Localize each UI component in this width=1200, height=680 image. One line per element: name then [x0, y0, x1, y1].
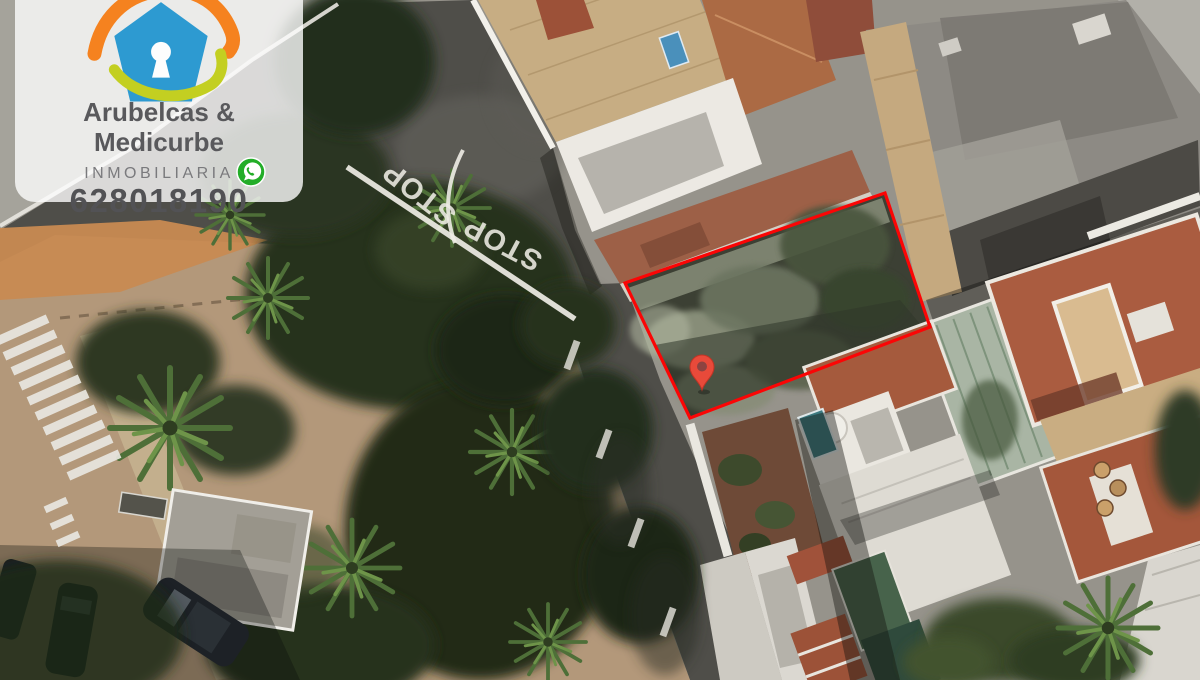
whatsapp-icon[interactable] [236, 157, 266, 187]
brand-name: Arubelcas & Medicurbe [15, 98, 303, 158]
brand-phone: 628018190 [15, 184, 303, 217]
real-estate-aerial-listing: STOP STOP Arubelcas & M [0, 0, 1200, 680]
brand-watermark-card: Arubelcas & Medicurbe INMOBILIARIA 62801… [15, 0, 303, 202]
brand-house-logo [15, 0, 303, 104]
